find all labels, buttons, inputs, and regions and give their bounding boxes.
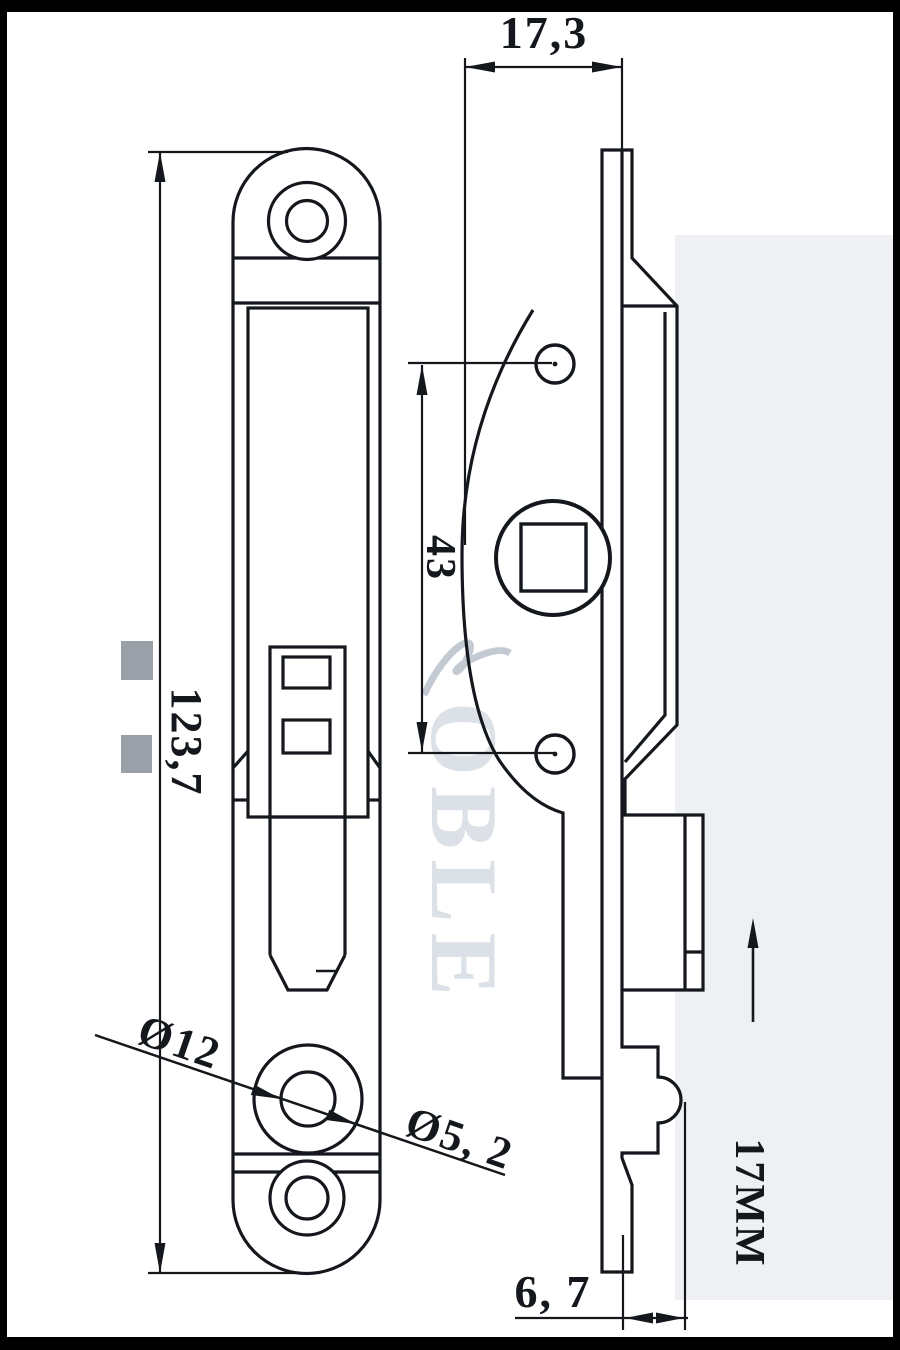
dim-hole-spacing-label: 43 (417, 535, 463, 581)
frame-edge-right (893, 0, 900, 1350)
center-dot (553, 362, 558, 367)
arrowhead-icon (625, 1313, 653, 1324)
spindle-boss-circle (496, 501, 610, 615)
drawing-canvas: OBLE (0, 0, 900, 1350)
counterbore-hole (254, 1045, 362, 1153)
frame-edge-bottom (0, 1337, 900, 1350)
arrowhead-icon (656, 1313, 684, 1324)
counterbore-diameter-label: Ø12 (132, 1005, 228, 1079)
arrowhead-icon (417, 365, 428, 395)
top-screw-hole-counterbore (269, 183, 346, 260)
bottom-screw-hole-counterbore (270, 1161, 344, 1235)
arrowhead-icon (155, 1243, 166, 1273)
through-hole-diameter-label: Ø5, 2 (400, 1097, 520, 1179)
front-view (233, 149, 380, 1274)
watermark-fragment (121, 735, 152, 773)
dim-bottom-offset-label: 6, 7 (515, 1266, 592, 1317)
arrowhead-icon (592, 62, 622, 73)
watermark-text: OBLE (411, 702, 517, 1006)
dim-overall-height-label: 123,7 (162, 688, 211, 797)
technical-drawing: OBLE (0, 0, 900, 1350)
dim-top-width-label: 17,3 (500, 7, 589, 58)
gray-wash-right (675, 235, 893, 1300)
arrowhead-icon (465, 62, 495, 73)
watermark-fragment (121, 641, 153, 680)
frame-edge-left (0, 0, 7, 1350)
arrowhead-icon (155, 152, 166, 182)
frame-edge-top (0, 0, 900, 12)
spindle-length-label: 17MM (726, 1138, 772, 1267)
